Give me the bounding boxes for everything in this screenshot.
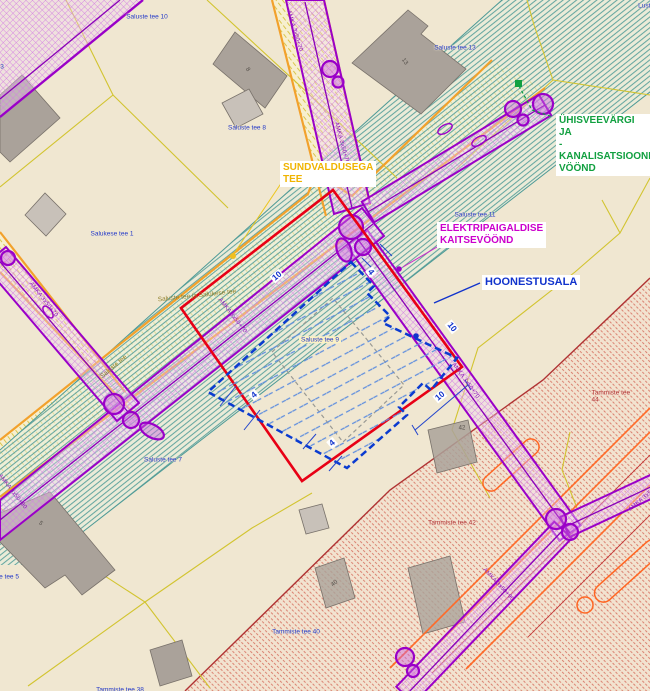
- water-point-marker: [515, 80, 522, 87]
- map-canvas[interactable]: Saluste tee 10Saluste tee 13Saluste tee …: [0, 0, 650, 691]
- cable-point-marker: [396, 266, 402, 272]
- road-point-marker: [230, 253, 236, 259]
- map-graphics: [0, 0, 650, 691]
- blue-point-marker: [413, 333, 419, 339]
